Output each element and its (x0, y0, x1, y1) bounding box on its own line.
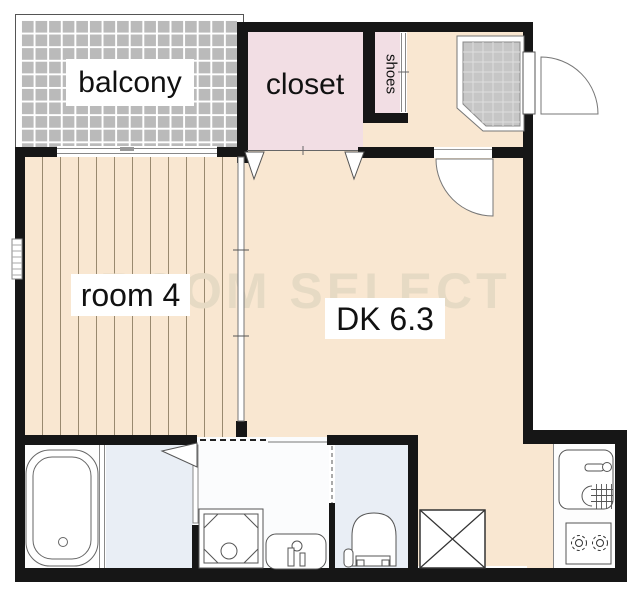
wall-partition-post (236, 421, 247, 437)
wall-toilet-right (408, 435, 418, 568)
wall-window-block-left (25, 147, 57, 157)
wall-bottom (15, 568, 627, 582)
closet-label: closet (252, 63, 358, 107)
shoes-label: shoes (374, 34, 408, 114)
kitchen-area (554, 444, 615, 568)
wall-shoes-bottom (363, 113, 408, 123)
dk-area-kitchen-ext (527, 444, 555, 568)
bathroom-area (25, 445, 98, 568)
wall-right-mid (523, 113, 533, 435)
utility-area (197, 437, 330, 568)
wall-right-top (523, 22, 533, 55)
wall-left (15, 147, 25, 582)
floor-plan: ROOM SELECT (0, 0, 640, 592)
closet-label-text: closet (266, 70, 344, 100)
dk-label-text: DK 6.3 (336, 303, 434, 335)
wall-right-bottom (615, 444, 627, 582)
wall-washroom-right-lower (192, 525, 199, 568)
wall-room4-bottom (15, 435, 197, 445)
bath-partition-icon (98, 445, 106, 568)
dk-label: DK 6.3 (325, 298, 445, 339)
room4-label: room 4 (71, 274, 190, 316)
wall-hall-bottom-left (358, 147, 434, 158)
entry-door-icon (523, 52, 598, 114)
washroom-area (106, 445, 193, 568)
wall-closet-column (237, 22, 248, 163)
wall-top (237, 22, 533, 32)
balcony-label: balcony (66, 59, 194, 106)
wall-toilet-left-lower (329, 503, 335, 568)
wall-toilet-top (327, 435, 418, 445)
toilet-area (335, 445, 409, 568)
room4-label-text: room 4 (81, 279, 181, 311)
wall-window-block-right (217, 147, 248, 157)
balcony-label-text: balcony (78, 68, 181, 98)
wall-step (523, 430, 627, 444)
shoes-label-text: shoes (384, 54, 399, 94)
